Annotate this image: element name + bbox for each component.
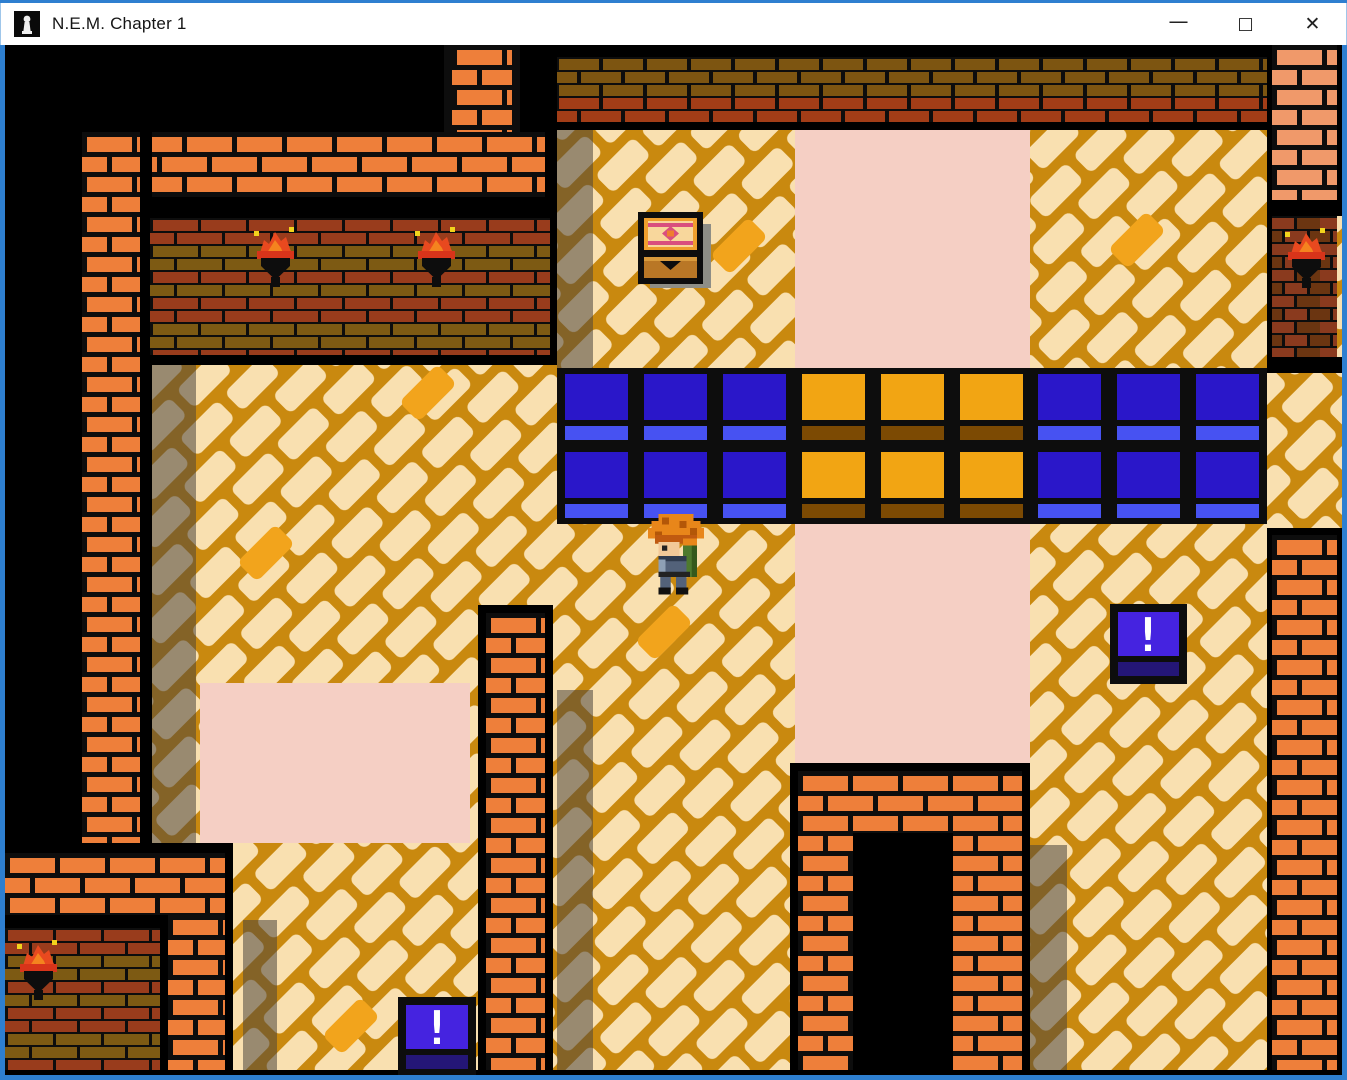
minimize-button[interactable]: — bbox=[1145, 0, 1212, 48]
top-wall-band bbox=[557, 45, 1267, 130]
doorway-structure bbox=[790, 763, 1030, 1070]
app-window: N.E.M. Chapter 1 — □ ✕ bbox=[0, 0, 1347, 1080]
game-frame: ! ! bbox=[0, 45, 1347, 1080]
carpet-top bbox=[795, 130, 1030, 368]
void-left bbox=[5, 45, 82, 845]
exclamation-text: ! bbox=[423, 1001, 451, 1055]
top-column bbox=[452, 45, 512, 132]
exclamation-text: ! bbox=[1134, 608, 1162, 662]
exclamation-block: ! bbox=[398, 997, 476, 1075]
torch-wall bbox=[150, 218, 550, 355]
maximize-button[interactable]: □ bbox=[1212, 3, 1279, 45]
close-button[interactable]: ✕ bbox=[1279, 3, 1346, 45]
tile-band bbox=[557, 368, 1267, 524]
carpet-center bbox=[795, 524, 1030, 763]
game-viewport[interactable]: ! ! bbox=[5, 45, 1342, 1075]
exclamation-block: ! bbox=[1110, 604, 1187, 684]
window-title: N.E.M. Chapter 1 bbox=[52, 14, 187, 34]
left-column bbox=[82, 132, 140, 845]
carpet-left bbox=[200, 683, 470, 843]
treasure-chest bbox=[638, 212, 711, 288]
app-icon bbox=[14, 11, 40, 37]
middle-column bbox=[478, 605, 553, 1070]
title-bar[interactable]: N.E.M. Chapter 1 — □ ✕ bbox=[0, 3, 1347, 45]
right-wall bbox=[1267, 45, 1342, 1070]
dark-doorway bbox=[853, 833, 953, 1070]
